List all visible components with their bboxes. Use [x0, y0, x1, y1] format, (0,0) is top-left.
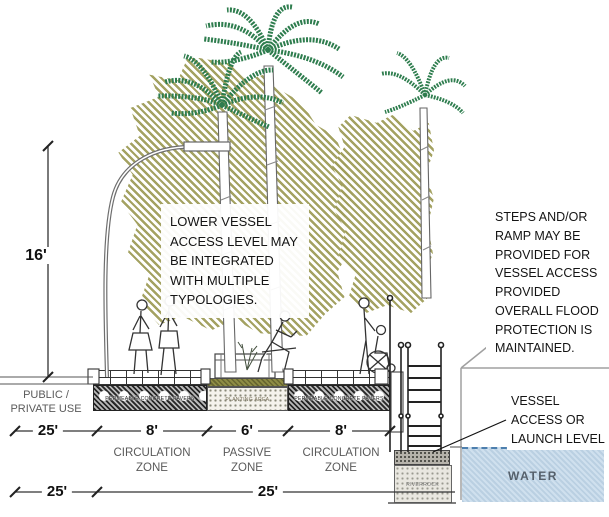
palm-fronds — [157, 7, 343, 127]
dim-25-bottom-left: 25' — [42, 483, 72, 500]
palm-fronds-small — [381, 53, 465, 113]
dim-8-right: 8' — [330, 422, 352, 439]
stairs — [388, 296, 457, 504]
waterfront-section-diagram: PERMEABLE CONCRETE PAVERS PLANTING AREA … — [0, 0, 609, 517]
dim-8-left: 8' — [141, 422, 163, 439]
note-lower-vessel: LOWER VESSEL ACCESS LEVEL MAY BE INTEGRA… — [161, 204, 309, 318]
dimension-lines — [15, 146, 455, 492]
dim-25-left: 25' — [33, 422, 63, 439]
note-vessel-access: VESSEL ACCESS OR LAUNCH LEVEL — [507, 390, 609, 450]
dimension-ticks — [10, 141, 395, 497]
zone-circulation-right: CIRCULATION ZONE — [295, 446, 387, 476]
zone-passive: PASSIVE ZONE — [216, 446, 278, 476]
public-private-use-label: PUBLIC / PRIVATE USE — [0, 388, 92, 417]
leader-line — [433, 420, 506, 452]
lamp-fixture — [184, 142, 230, 151]
note-steps-ramp: STEPS AND/OR RAMP MAY BE PROVIDED FOR VE… — [486, 200, 609, 366]
zone-circulation-left: CIRCULATION ZONE — [106, 446, 198, 476]
dim-25-bottom-right: 25' — [253, 483, 283, 500]
dim-6-center: 6' — [236, 422, 258, 439]
dim-height-16: 16' — [20, 247, 52, 264]
